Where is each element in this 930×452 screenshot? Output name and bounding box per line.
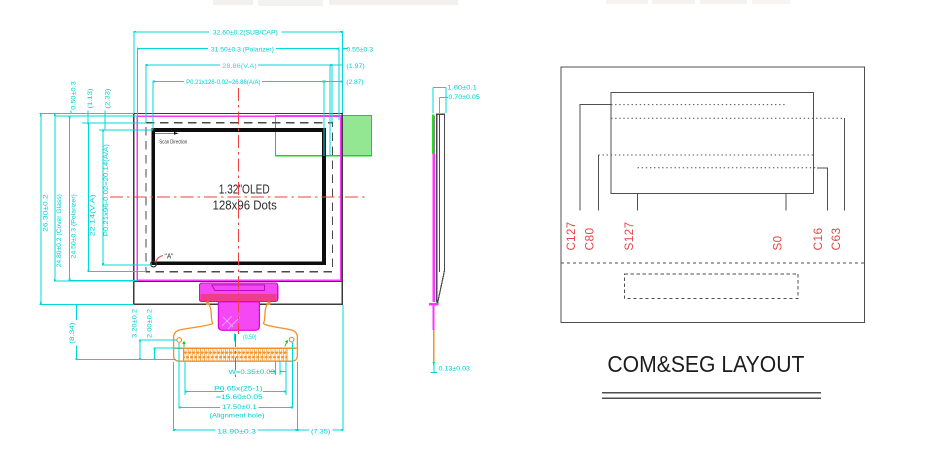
svg-text:(0.50): (0.50) bbox=[243, 334, 257, 341]
svg-text:128x96 Dots: 128x96 Dots bbox=[213, 198, 278, 213]
svg-text:26.30±0.2: 26.30±0.2 bbox=[43, 194, 50, 232]
svg-text:P0.21x96-0.02=20.14(A/A): P0.21x96-0.02=20.14(A/A) bbox=[103, 144, 110, 236]
svg-text:Scan Direction: Scan Direction bbox=[159, 139, 187, 145]
svg-text:32.60±0.2(SUB/CAP): 32.60±0.2(SUB/CAP) bbox=[213, 30, 278, 37]
svg-text:31.50±0.3 (Polarizer): 31.50±0.3 (Polarizer) bbox=[211, 46, 274, 53]
svg-text:C16: C16 bbox=[813, 228, 825, 251]
svg-text:18.90±0.3: 18.90±0.3 bbox=[217, 429, 256, 436]
svg-text:24.80±0.2 (Cover Glass): 24.80±0.2 (Cover Glass) bbox=[56, 194, 63, 267]
svg-text:(2.87): (2.87) bbox=[346, 79, 363, 86]
svg-text:1.60±0.1: 1.60±0.1 bbox=[447, 85, 477, 92]
svg-text:0.50±0.3: 0.50±0.3 bbox=[71, 81, 78, 110]
svg-text:24.50±0.3 (Polarizer): 24.50±0.3 (Polarizer) bbox=[71, 194, 78, 258]
svg-text:22.14(V.A): 22.14(V.A) bbox=[90, 194, 97, 236]
svg-text:17.50±0.1: 17.50±0.1 bbox=[222, 404, 257, 411]
svg-text:S127: S127 bbox=[624, 222, 636, 251]
svg-text:2.00±0.2: 2.00±0.2 bbox=[146, 309, 153, 338]
svg-text:=15.60±0.05: =15.60±0.05 bbox=[216, 394, 263, 401]
svg-text:0.70±0.05: 0.70±0.05 bbox=[448, 94, 480, 101]
svg-text:C63: C63 bbox=[831, 228, 843, 251]
svg-text:C80: C80 bbox=[585, 228, 597, 251]
svg-text:"A": "A" bbox=[165, 254, 174, 261]
svg-text:0.13±0.03: 0.13±0.03 bbox=[439, 365, 471, 372]
svg-text:W=0.35±0.03: W=0.35±0.03 bbox=[229, 369, 276, 376]
svg-text:P0.65x(25-1): P0.65x(25-1) bbox=[214, 386, 262, 393]
svg-text:C127: C127 bbox=[566, 222, 578, 251]
svg-text:0.55±0.3: 0.55±0.3 bbox=[346, 46, 373, 53]
svg-text:28.86(V.A): 28.86(V.A) bbox=[222, 63, 256, 70]
svg-text:1.32"OLED: 1.32"OLED bbox=[219, 181, 270, 196]
svg-text:COM&SEG LAYOUT: COM&SEG LAYOUT bbox=[607, 351, 804, 377]
svg-text:P0.21x128-0.02=26.86(A/A): P0.21x128-0.02=26.86(A/A) bbox=[186, 79, 260, 86]
svg-text:(2.33): (2.33) bbox=[104, 89, 111, 109]
svg-text:S0: S0 bbox=[772, 236, 784, 251]
svg-text:3.20±0.2: 3.20±0.2 bbox=[132, 309, 139, 338]
svg-text:(1.13): (1.13) bbox=[87, 89, 94, 109]
svg-text:(8.34): (8.34) bbox=[69, 323, 76, 344]
svg-text:(7.35): (7.35) bbox=[311, 429, 330, 436]
svg-text:(1.97): (1.97) bbox=[346, 63, 364, 70]
svg-text:(Alignment hole): (Alignment hole) bbox=[210, 413, 265, 420]
